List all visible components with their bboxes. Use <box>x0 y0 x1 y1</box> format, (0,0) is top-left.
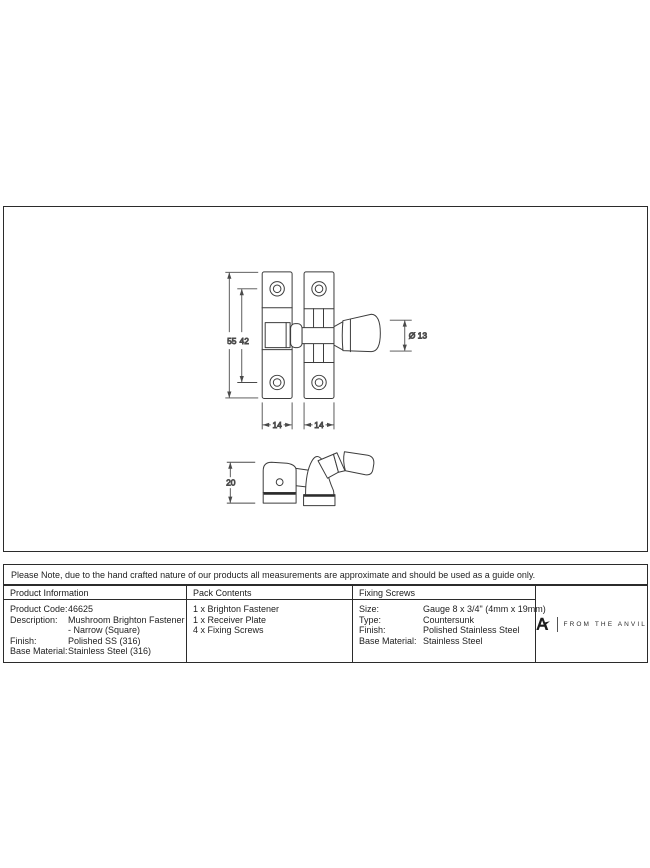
row-value: Gauge 8 x 3/4" (4mm x 19mm) <box>423 604 546 615</box>
row-label: Size: <box>359 604 419 615</box>
product-information-header: Product Information <box>4 586 186 600</box>
row-label: Type: <box>359 615 419 626</box>
anvil-logo-icon <box>536 617 551 631</box>
front-view <box>262 272 380 399</box>
latch-bar <box>302 328 334 344</box>
brand-cell: FROM THE ANVIL <box>535 586 647 662</box>
row-label: Product Code: <box>10 604 64 615</box>
brand-divider <box>557 617 558 632</box>
dim-label-14-right: 14 <box>314 420 324 430</box>
row-value: Stainless Steel (316) <box>68 646 180 657</box>
side-view <box>263 452 374 506</box>
dim-knob-diameter: Ø 13 <box>390 320 428 351</box>
pack-item: 4 x Fixing Screws <box>193 625 346 636</box>
row-value: Countersunk <box>423 615 529 626</box>
dim-label-55: 55 <box>227 336 237 346</box>
table-row: Product Code: 46625 <box>10 604 180 615</box>
note-text: Please Note, due to the hand crafted nat… <box>11 570 535 580</box>
spec-sheet: 55 42 14 <box>0 0 650 868</box>
knob-neck <box>334 322 343 350</box>
table-row: Base Material: Stainless Steel <box>359 636 529 647</box>
row-label <box>10 625 64 636</box>
row-label: Base Material: <box>359 636 419 647</box>
table-row: Size: Gauge 8 x 3/4" (4mm x 19mm) <box>359 604 529 615</box>
measurement-note: Please Note, due to the hand crafted nat… <box>3 564 648 585</box>
product-information-column: Product Information Product Code: 46625 … <box>4 586 186 662</box>
dim-label-42: 42 <box>240 336 250 346</box>
table-row: Description: Mushroom Brighton Fastener <box>10 615 180 626</box>
mushroom-knob-front <box>342 314 380 351</box>
row-value: Polished Stainless Steel <box>423 625 529 636</box>
receiver-block-side <box>263 462 296 492</box>
latch-end-cap <box>291 324 302 348</box>
table-row: Base Material: Stainless Steel (316) <box>10 646 180 657</box>
row-label: Finish: <box>359 625 419 636</box>
pack-item: 1 x Receiver Plate <box>193 615 346 626</box>
pack-contents-column: Pack Contents 1 x Brighton Fastener 1 x … <box>186 586 352 662</box>
row-value: Mushroom Brighton Fastener <box>68 615 185 626</box>
row-value: Polished SS (316) <box>68 636 180 647</box>
table-row: Finish: Polished Stainless Steel <box>359 625 529 636</box>
technical-drawing-panel: 55 42 14 <box>3 206 648 552</box>
table-row: Type: Countersunk <box>359 615 529 626</box>
mushroom-knob-side <box>344 452 374 475</box>
row-value: Stainless Steel <box>423 636 529 647</box>
pack-contents-header: Pack Contents <box>187 586 352 600</box>
row-value: - Narrow (Square) <box>68 625 180 636</box>
row-label: Base Material: <box>10 646 64 657</box>
row-label: Finish: <box>10 636 64 647</box>
dim-label-14-left: 14 <box>272 420 282 430</box>
technical-drawing: 55 42 14 <box>4 207 647 551</box>
brand-name: FROM THE ANVIL <box>564 621 647 628</box>
dim-left-plate-width: 14 <box>262 402 292 429</box>
fixing-screws-header: Fixing Screws <box>353 586 535 600</box>
dim-right-plate-width: 14 <box>304 402 334 429</box>
row-value: 46625 <box>68 604 180 615</box>
dim-label-20: 20 <box>226 478 236 488</box>
spec-table: Product Information Product Code: 46625 … <box>3 585 648 663</box>
table-row: - Narrow (Square) <box>10 625 180 636</box>
pack-item: 1 x Brighton Fastener <box>193 604 346 615</box>
row-label: Description: <box>10 615 64 626</box>
table-row: Finish: Polished SS (316) <box>10 636 180 647</box>
dim-label-dia13: Ø 13 <box>409 331 428 341</box>
dim-side-height: 20 <box>226 462 255 503</box>
dim-hole-spacing: 42 <box>237 289 257 383</box>
fixing-screws-column: Fixing Screws Size: Gauge 8 x 3/4" (4mm … <box>352 586 535 662</box>
